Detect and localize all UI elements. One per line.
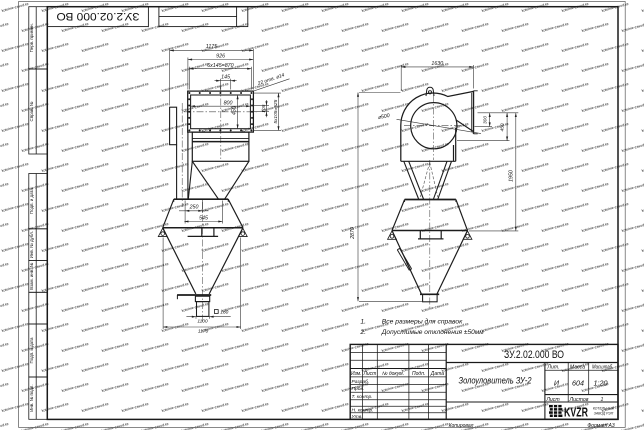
svg-text:КОТЕЛЬНЫЙ: КОТЕЛЬНЫЙ xyxy=(593,407,615,411)
svg-text:Допустимые отклонения ±50мм: Допустимые отклонения ±50мм xyxy=(381,329,484,336)
svg-text:145: 145 xyxy=(221,75,230,81)
svg-text:1630: 1630 xyxy=(431,61,443,67)
svg-text:Взам. инв. №: Взам. инв. № xyxy=(29,262,34,289)
svg-text:450: 450 xyxy=(500,123,506,131)
svg-text:Масса: Масса xyxy=(570,365,585,371)
svg-text:ЗУ.2.02.000 ВО: ЗУ.2.02.000 ВО xyxy=(504,349,564,361)
svg-text:1175: 1175 xyxy=(206,44,217,50)
svg-text:И: И xyxy=(554,379,560,388)
svg-text:Разраб.: Разраб. xyxy=(352,379,370,385)
svg-text:Пров.: Пров. xyxy=(352,386,365,392)
svg-text:Подп.: Подп. xyxy=(412,371,425,377)
svg-text:Изм.: Изм. xyxy=(351,371,362,377)
svg-text:KVZR: KVZR xyxy=(564,405,588,419)
svg-text:Н. контр.: Н. контр. xyxy=(352,408,374,414)
svg-text:450: 450 xyxy=(231,106,237,115)
svg-text:1:20: 1:20 xyxy=(594,379,608,388)
svg-text:Копировал: Копировал xyxy=(449,423,474,429)
svg-text:1170: 1170 xyxy=(198,329,209,335)
svg-text:Дата: Дата xyxy=(430,371,444,377)
svg-text:Утв.: Утв. xyxy=(352,414,363,420)
svg-text:Перв. примен.: Перв. примен. xyxy=(29,23,34,52)
svg-text:180: 180 xyxy=(220,310,228,316)
svg-text:Формат А3: Формат А3 xyxy=(587,423,615,429)
svg-text:Листов: Листов xyxy=(569,397,589,403)
svg-text:Т. контр.: Т. контр. xyxy=(352,394,373,400)
svg-text:1950: 1950 xyxy=(508,170,514,182)
svg-text:Золоуловитель ЗУ-2: Золоуловитель ЗУ-2 xyxy=(459,376,532,386)
svg-text:2870: 2870 xyxy=(350,227,356,240)
svg-text:2.: 2. xyxy=(359,329,366,336)
svg-text:1: 1 xyxy=(601,397,604,403)
svg-text:ЗУ.2.02.000 ВО: ЗУ.2.02.000 ВО xyxy=(56,10,139,22)
svg-text:Справ. №: Справ. № xyxy=(29,101,34,121)
svg-text:Масштаб: Масштаб xyxy=(592,365,613,371)
svg-text:Лист: Лист xyxy=(545,397,560,403)
svg-text:Подп. и дата: Подп. и дата xyxy=(29,337,34,363)
svg-text:ЗАВОД РЭП: ЗАВОД РЭП xyxy=(594,412,614,416)
svg-text:5х105=525: 5х105=525 xyxy=(273,99,279,123)
svg-text:545: 545 xyxy=(199,215,208,221)
svg-text:№ докум.: № докум. xyxy=(382,371,404,377)
svg-text:1100: 1100 xyxy=(197,319,208,325)
svg-text:Инв. № дубл.: Инв. № дубл. xyxy=(29,231,34,258)
svg-text:604: 604 xyxy=(572,379,584,388)
svg-text:Инв. № подл.: Инв. № подл. xyxy=(29,384,34,411)
svg-text:Лист: Лист xyxy=(362,371,376,377)
svg-text:Все размеры для справок: Все размеры для справок xyxy=(382,317,463,325)
svg-text:105: 105 xyxy=(261,104,267,112)
svg-text:800: 800 xyxy=(224,101,233,107)
svg-text:6х145=870: 6х145=870 xyxy=(207,63,233,69)
svg-text:300: 300 xyxy=(483,116,489,124)
svg-text:926: 926 xyxy=(216,54,225,60)
svg-text:Лит.: Лит. xyxy=(546,365,559,371)
svg-text:1.: 1. xyxy=(360,318,366,325)
svg-text:Подп. и дата: Подп. и дата xyxy=(29,188,34,214)
svg-text:250: 250 xyxy=(189,205,199,211)
